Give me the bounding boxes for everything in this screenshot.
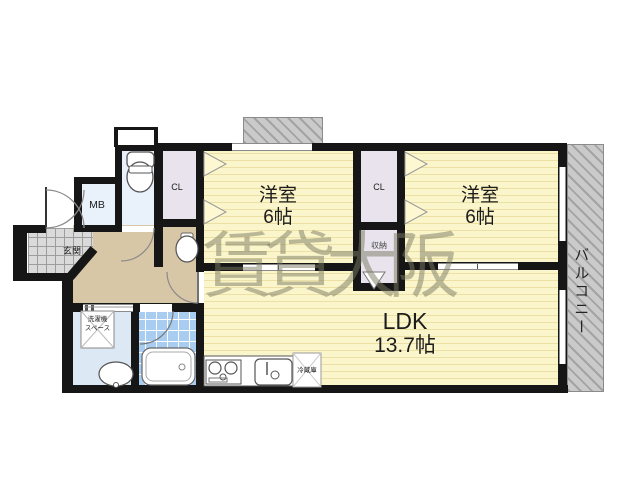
meter-box-label: MB bbox=[77, 199, 117, 211]
closet-right-label: CL bbox=[358, 182, 400, 192]
balcony-label: バルコニー bbox=[572, 227, 589, 357]
bedroom-right-label: 洋室 6帖 bbox=[438, 185, 522, 229]
room-name: 洋室 bbox=[438, 185, 522, 207]
washer-space-label: 洗濯機 スペース bbox=[77, 315, 118, 334]
fridge-label: 冷蔵庫 bbox=[293, 366, 321, 375]
bathtub-icon bbox=[142, 348, 195, 385]
washbasin-icon bbox=[176, 233, 198, 262]
washer-line2: スペース bbox=[77, 324, 118, 333]
watermark-text: 賃貸大阪 bbox=[202, 207, 450, 312]
floorplan-canvas: 洋室 6帖 洋室 6帖 LDK 13.7帖 CL CL 収納 MB 玄関 洗濯機… bbox=[0, 0, 640, 480]
room-size: 13.7帖 bbox=[343, 334, 467, 358]
ldk-label: LDK 13.7帖 bbox=[343, 308, 467, 359]
sink-basin-icon bbox=[99, 362, 133, 388]
closet-left-label: CL bbox=[158, 182, 196, 192]
room-size: 6帖 bbox=[438, 207, 522, 229]
room-name: 洋室 bbox=[236, 185, 320, 207]
washer-line1: 洗濯機 bbox=[77, 315, 118, 324]
kitchen-counter bbox=[204, 356, 293, 386]
entrance-label: 玄関 bbox=[50, 246, 94, 256]
bathroom-door-arc bbox=[140, 311, 173, 344]
toilet-icon bbox=[127, 152, 154, 192]
toilet-door-arc bbox=[121, 228, 154, 261]
hall-ldk-door bbox=[167, 272, 198, 303]
